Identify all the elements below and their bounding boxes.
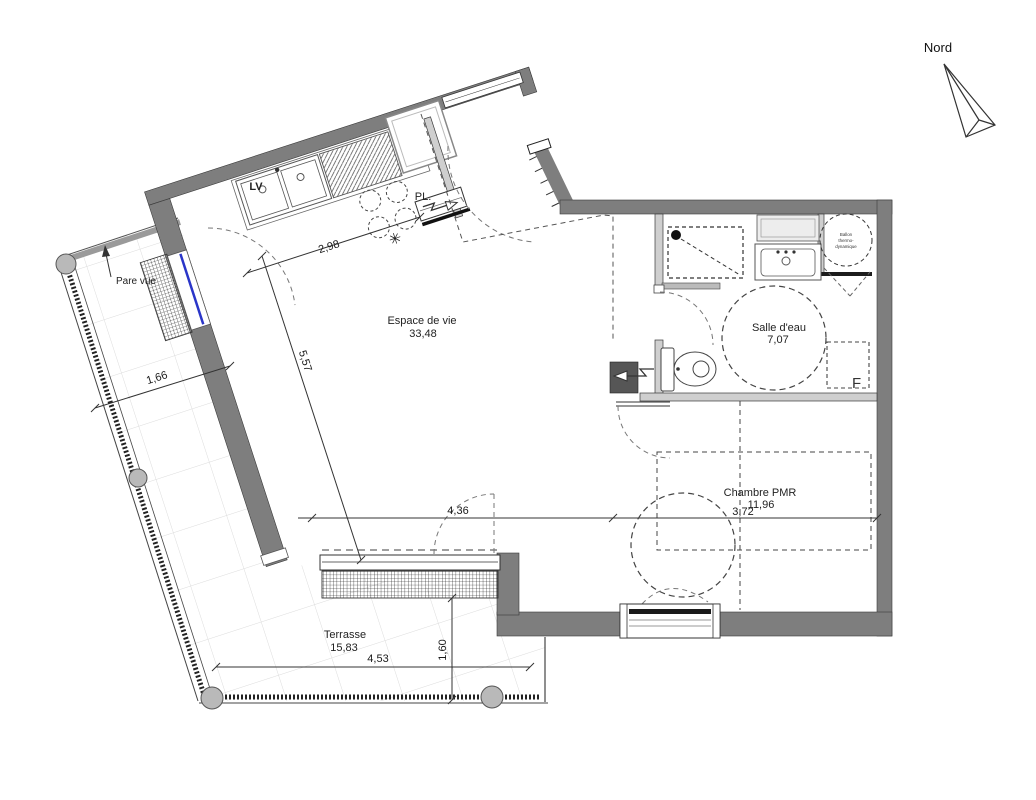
water-heater-label-3: dynamique xyxy=(835,244,857,249)
bay-window xyxy=(320,494,500,598)
dishwasher-label: LV xyxy=(249,181,263,193)
shower-diagonal xyxy=(681,239,740,275)
bedroom-area: 11,96 xyxy=(748,499,775,511)
toilet-button xyxy=(676,367,680,371)
wall-right xyxy=(877,200,892,636)
north-arrow-icon xyxy=(944,64,995,137)
bathroom-label: Salle d'eau xyxy=(752,322,806,334)
terrace-post xyxy=(201,687,223,709)
wall-entry xyxy=(540,148,568,206)
hall xyxy=(610,362,654,393)
terrace-post xyxy=(129,469,147,487)
faucet-dot xyxy=(792,250,795,253)
terrace-label: Terrasse xyxy=(324,629,366,641)
shower-drain-dot xyxy=(671,230,681,240)
wall-top-right xyxy=(560,200,892,214)
terrace-area: 15,83 xyxy=(330,642,358,654)
bedroom-window-glazing xyxy=(629,609,711,614)
bedroom xyxy=(616,401,871,638)
bath-door-swing xyxy=(660,292,713,345)
dim-living-width: 4,36 xyxy=(447,505,468,517)
bedroom-label: Chambre PMR xyxy=(724,487,797,499)
bath-bedroom-wall xyxy=(640,393,877,401)
compass: Nord xyxy=(924,40,995,137)
left-window-swing xyxy=(208,228,295,305)
entry-window-line xyxy=(445,78,519,102)
bedroom-window-jamb xyxy=(620,604,627,638)
toilet-bowl xyxy=(674,352,716,386)
vent-star-icon: ✳ xyxy=(387,229,404,249)
living-room-label: Espace de vie xyxy=(387,315,456,327)
main-walls xyxy=(497,200,892,636)
dim-terrace-bottom: 4,53 xyxy=(367,653,388,665)
dim-terrace-side: 1,60 xyxy=(437,639,449,660)
bay-frame xyxy=(320,555,500,570)
bedroom-window-jamb xyxy=(713,604,720,638)
shower-screen xyxy=(662,283,720,289)
appliance-space-outline xyxy=(827,342,869,388)
floor-plan-page: ✳ xyxy=(0,0,1036,800)
floor-plan-canvas: ✳ xyxy=(0,0,1036,800)
heater-niche-sill xyxy=(820,272,872,276)
privacy-screen-label: Pare vue xyxy=(116,276,156,287)
dim-kitchen-width: 2,98 xyxy=(317,238,341,256)
faucet-dot xyxy=(776,250,779,253)
living-room-area: 33,48 xyxy=(409,328,437,340)
bath-partition-upper xyxy=(655,214,663,292)
water-heater-label-1: Ballon xyxy=(840,232,853,237)
faucet-dot xyxy=(784,250,787,253)
bay-threshold-hatch xyxy=(322,571,498,598)
pmr-turning-circle-bedroom xyxy=(631,493,735,597)
terrace-post xyxy=(481,686,503,708)
toilet-tank xyxy=(661,348,674,391)
water-heater-label-2: thermo- xyxy=(838,238,854,243)
bedroom-door-swing xyxy=(618,406,670,458)
north-label: Nord xyxy=(924,40,952,55)
bathroom: Ballon thermo- dynamique F xyxy=(640,214,877,401)
marker-f-label: F xyxy=(852,375,861,392)
bay-opening-swing xyxy=(434,494,494,554)
bedroom-window-swing xyxy=(642,588,708,604)
closet-label: PL. xyxy=(415,191,432,203)
bathroom-area: 7,07 xyxy=(767,334,788,346)
terrace-post xyxy=(56,254,76,274)
